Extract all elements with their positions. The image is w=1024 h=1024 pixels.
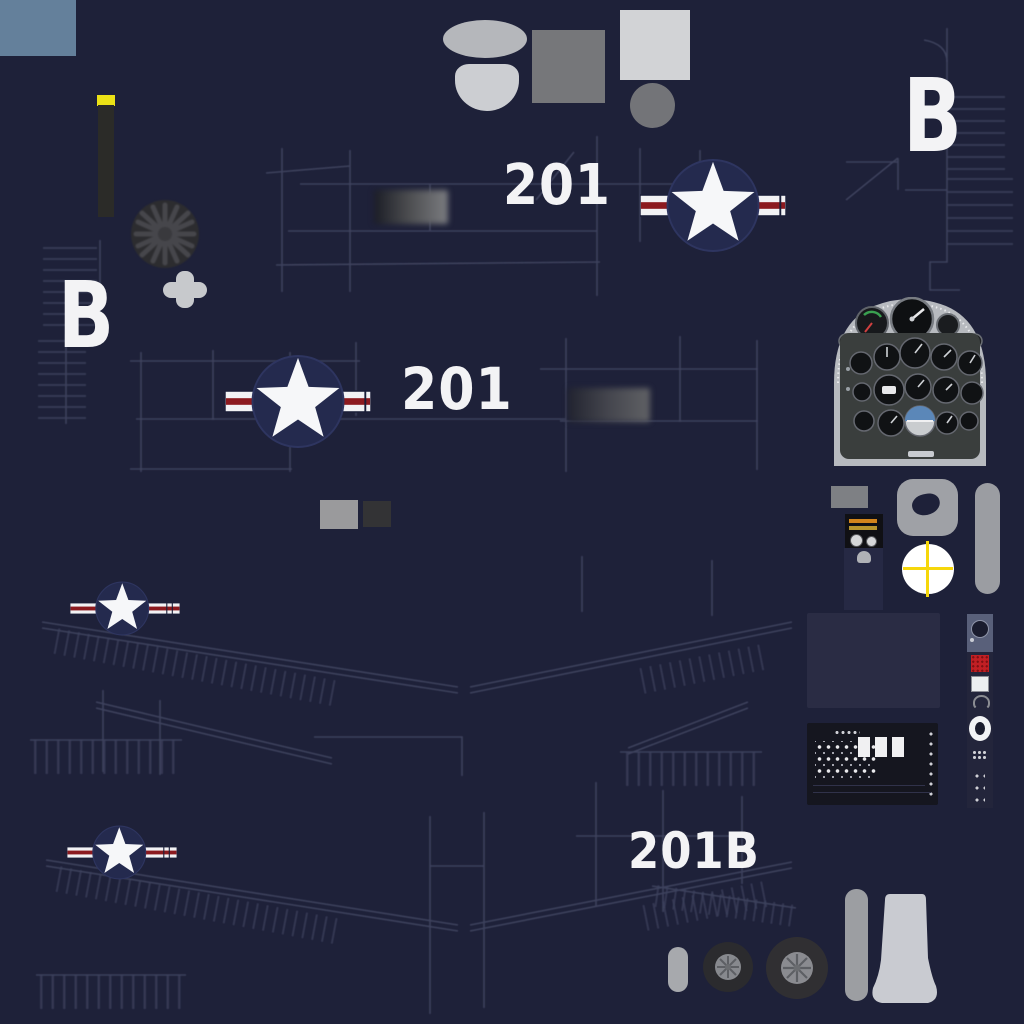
strip-red-keypad	[971, 655, 989, 672]
strip-ring-grommet	[969, 716, 991, 741]
throttle-quadrant	[845, 514, 883, 548]
nose-number-top: 201	[503, 158, 611, 214]
strip-horseshoe	[973, 695, 990, 710]
headrest-donut-pad	[897, 479, 958, 536]
gear-leg-fairing	[866, 890, 942, 1008]
exhaust-stain-patch-mid	[568, 388, 650, 422]
national-insignia-fuselage-right	[640, 158, 786, 253]
equipment-gray-plate	[831, 486, 868, 508]
gear-link-capsule	[668, 947, 688, 992]
throttle-base-block	[844, 548, 883, 610]
nose-number-mid: 201	[401, 360, 513, 418]
avionics-bay-panel	[807, 613, 940, 708]
sensor-window-square-gray	[320, 500, 358, 529]
antenna-mast-stripe	[98, 105, 114, 217]
cockpit-instrument-panel	[834, 297, 986, 466]
national-insignia-fuselage-left	[225, 354, 371, 449]
tail-letter-right: B	[903, 66, 963, 168]
texture-atlas-canvas: B B 201 201 201B	[0, 0, 1024, 1024]
first-aid-cross	[163, 271, 207, 308]
flap-number: 201B	[628, 826, 760, 876]
landing-gear-strut	[845, 889, 868, 1001]
national-insignia-wing-upper	[70, 581, 180, 636]
switch-cover-3	[892, 737, 904, 757]
side-console-strip	[967, 614, 993, 808]
switch-cover-2	[875, 737, 887, 757]
national-insignia-wing-lower	[67, 825, 177, 880]
strip-gauge-block	[967, 614, 993, 652]
tail-wheel	[703, 942, 753, 992]
switch-console	[807, 723, 938, 805]
switch-cover-1	[858, 737, 870, 757]
fairing-circle	[630, 83, 675, 128]
life-raft-marker	[902, 544, 954, 594]
knob-dome	[857, 551, 871, 563]
strip-white-display	[971, 676, 989, 692]
exhaust-stain-patch-top	[374, 190, 448, 224]
propeller-disc	[130, 199, 200, 269]
fairing-ellipse	[443, 20, 527, 58]
boarding-step-bar	[975, 483, 1000, 594]
canopy-glass-swatch	[0, 0, 76, 56]
tail-letter-left: B	[58, 270, 115, 362]
main-wheel	[766, 937, 828, 999]
sensor-window-square-large	[532, 30, 605, 103]
life-raft-cross-horizontal	[903, 567, 953, 570]
sensor-window-rect-light	[620, 10, 690, 80]
sensor-window-square-dark	[363, 501, 391, 527]
